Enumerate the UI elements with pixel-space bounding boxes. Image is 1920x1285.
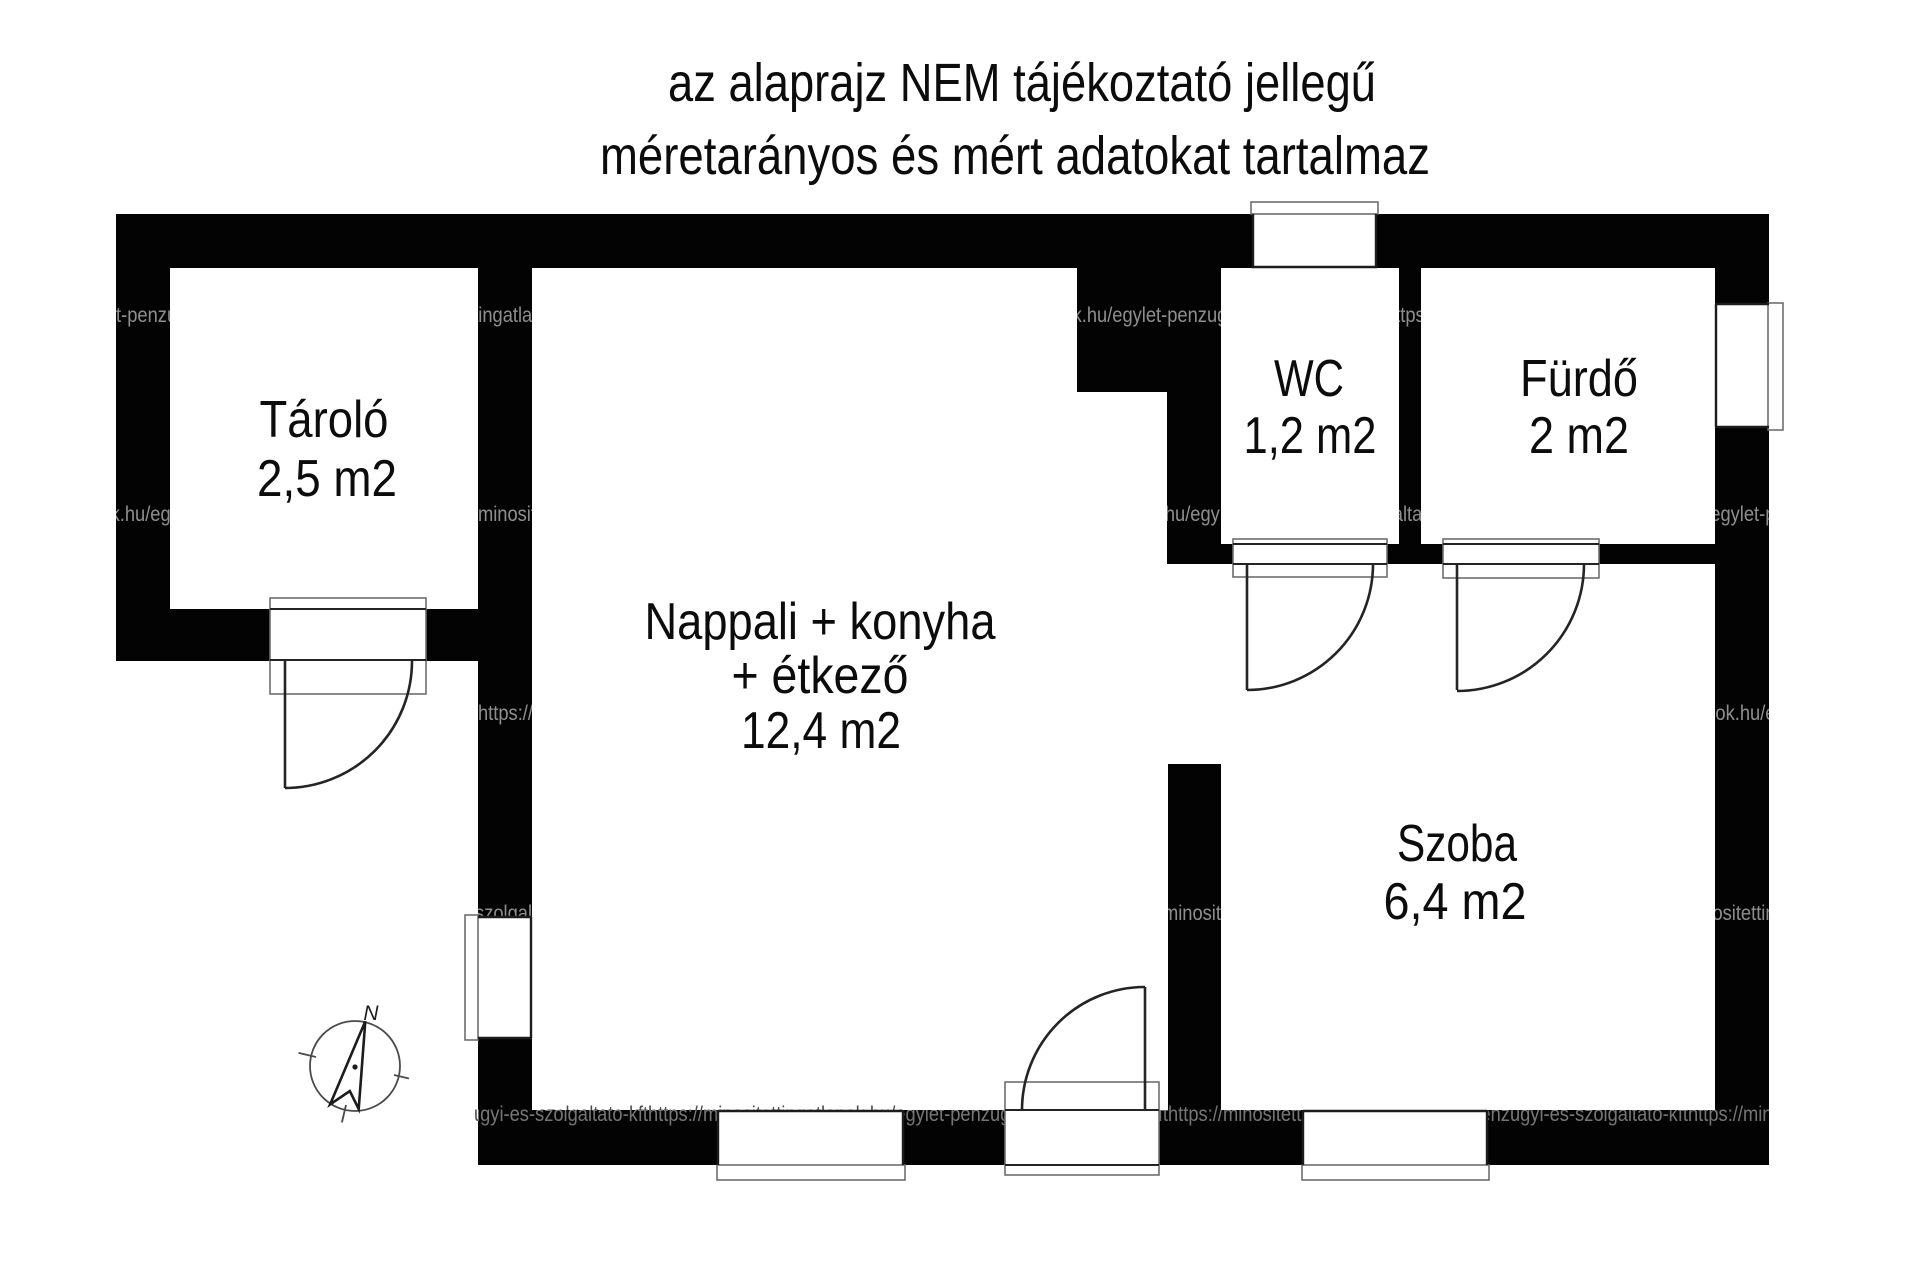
svg-text:12,4 m2: 12,4 m2 (741, 702, 901, 760)
svg-text:1,2 m2: 1,2 m2 (1244, 407, 1377, 465)
svg-text:Szoba: Szoba (1397, 815, 1517, 873)
svg-text:WC: WC (1274, 350, 1344, 408)
svg-text:Tároló: Tároló (260, 391, 389, 449)
svg-text:+ étkező: + étkező (732, 647, 909, 705)
svg-text:Fürdő: Fürdő (1520, 350, 1638, 408)
svg-text:N: N (363, 1002, 379, 1025)
svg-text:az alaprajz NEM tájékoztató je: az alaprajz NEM tájékoztató jellegű (668, 53, 1376, 113)
svg-text:2 m2: 2 m2 (1529, 407, 1629, 465)
svg-text:méretarányos és mért adatokat: méretarányos és mért adatokat tartalmaz (600, 126, 1430, 186)
svg-text:2,5 m2: 2,5 m2 (257, 450, 397, 508)
svg-text:6,4 m2: 6,4 m2 (1384, 873, 1527, 931)
svg-text:Nappali + konyha: Nappali + konyha (645, 593, 996, 651)
